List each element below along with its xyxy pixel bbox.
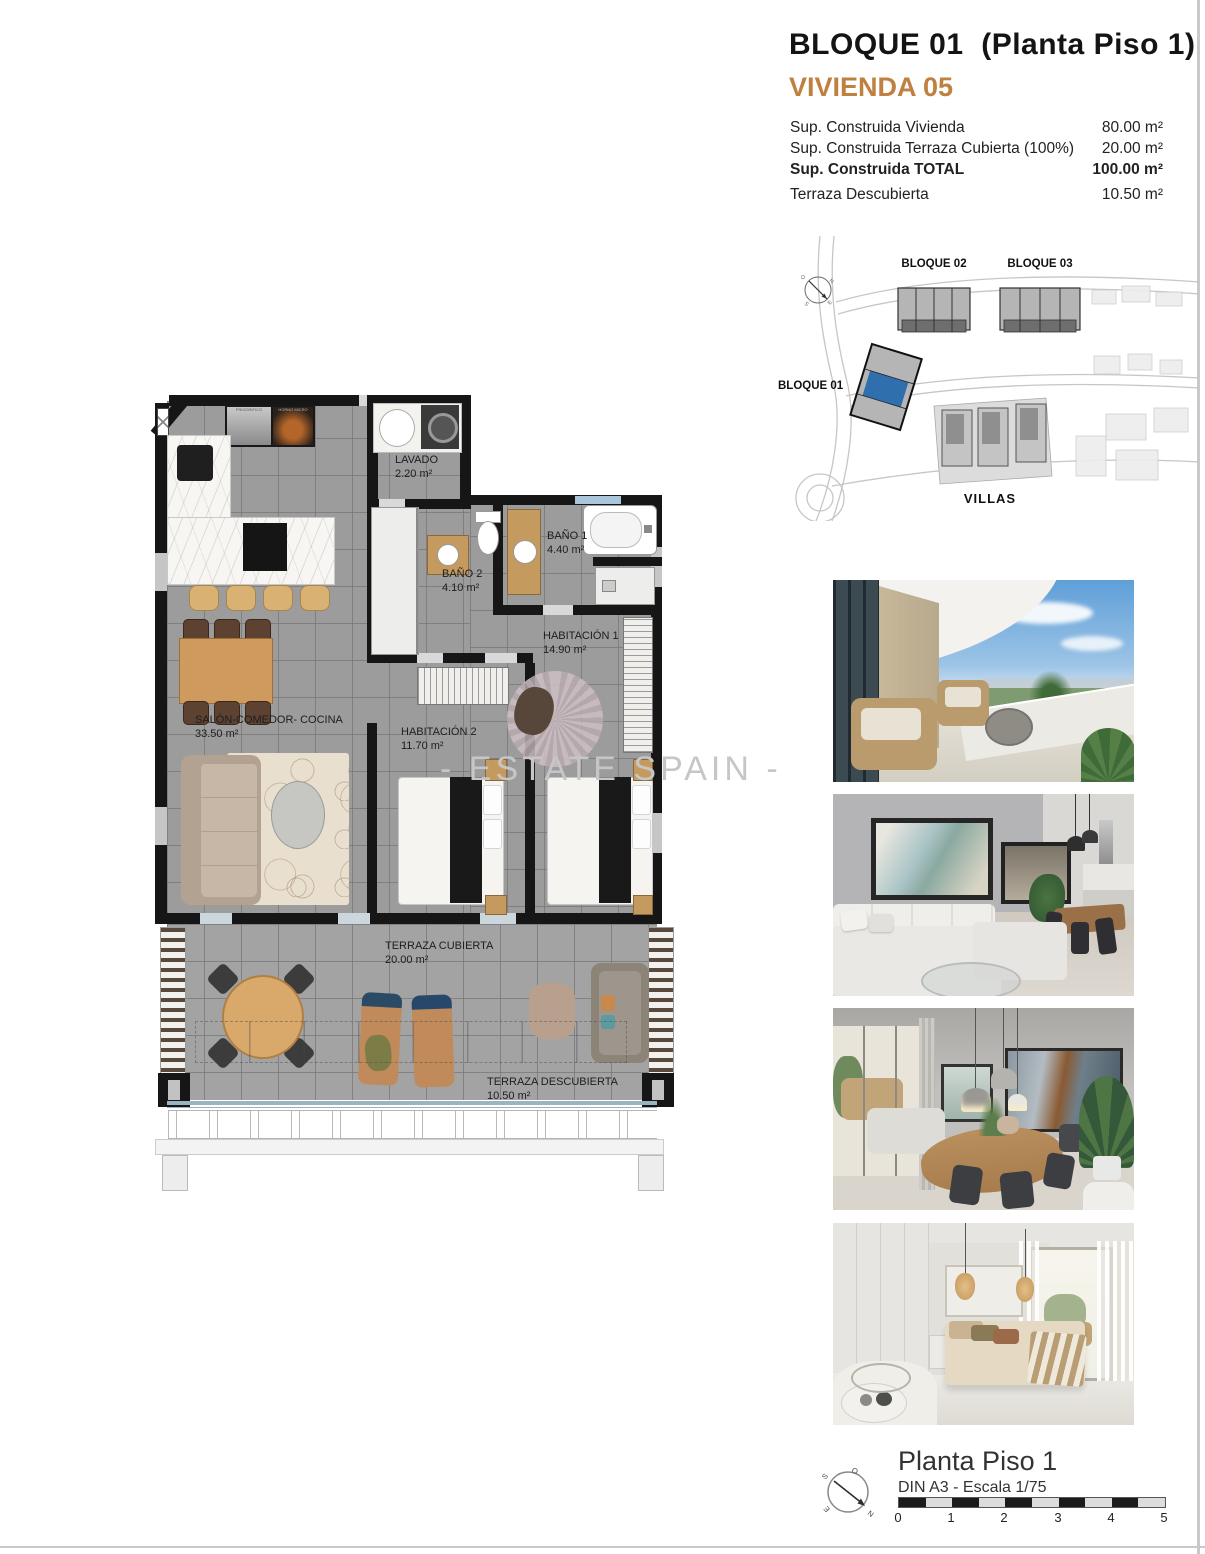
pendant-cord — [1017, 1008, 1018, 1098]
spec-value: 80.00 m² — [1102, 119, 1163, 137]
room-name: SALÓN-COMEDOR- COCINA — [195, 713, 343, 727]
room-label-lavado: LAVADO 2.20 m² — [395, 453, 438, 482]
pendant-cord — [1025, 1229, 1026, 1281]
building-bloque-01 — [850, 344, 921, 430]
roundabout — [796, 474, 844, 521]
context-building — [1154, 408, 1188, 432]
slider-gap-2 — [338, 913, 370, 924]
label-bloque-02: BLOQUE 02 — [901, 258, 966, 270]
dining-chair — [1042, 1152, 1075, 1190]
bed-runner-hab1 — [599, 777, 631, 903]
slider-gap-1 — [200, 913, 232, 924]
oven-label: HORNO MICRO — [273, 407, 313, 412]
bed — [945, 1321, 1085, 1385]
vanity-bath1 — [507, 509, 541, 595]
glass-coffee-table — [921, 962, 1021, 996]
wall-art-large — [871, 818, 993, 900]
post-cap — [168, 1080, 180, 1100]
compass-n: N — [828, 278, 835, 285]
pillow — [632, 785, 651, 815]
room-area: 14.90 m² — [543, 643, 619, 657]
corner-window — [157, 408, 169, 436]
villa-roof — [946, 414, 964, 444]
villa-roof — [982, 412, 1000, 444]
bar-stool — [226, 585, 256, 611]
pillow — [840, 908, 869, 931]
room-label-hab1: HABITACIÓN 1 14.90 m² — [543, 629, 619, 658]
washer-door — [428, 413, 458, 443]
toilet-bowl — [477, 521, 499, 555]
page-border-right — [1197, 0, 1200, 1554]
context-building — [1122, 286, 1150, 302]
villas-group — [934, 398, 1052, 484]
spec-row: Sup. Construida Terraza Cubierta (100%) … — [790, 140, 1163, 159]
room-label-terraza-cubierta: TERRAZA CUBIERTA 20.00 m² — [385, 939, 493, 968]
spec-value: 20.00 m² — [1102, 140, 1163, 158]
kitchen-cabinets — [1083, 864, 1134, 890]
appliance-strip: FRIGORIFICO HORNO MICRO — [225, 405, 315, 447]
room-area: 2.20 m² — [395, 467, 438, 481]
photo-dining-room — [833, 1008, 1134, 1210]
scale-segment — [926, 1498, 953, 1507]
room-name: LAVADO — [395, 453, 438, 467]
scale-tick: 3 — [1054, 1510, 1061, 1525]
room-area: 10.50 m² — [487, 1089, 618, 1103]
pergola-beam — [155, 1139, 664, 1155]
sink-bath1 — [513, 540, 537, 564]
pendant-lamp — [991, 1068, 1017, 1089]
label-villas: VILLAS — [964, 491, 1016, 506]
fridge: FRIGORIFICO — [227, 407, 271, 445]
label-bloque-01: BLOQUE 01 — [778, 380, 844, 392]
pendant-cord — [1003, 1008, 1004, 1072]
door-gap-hab1 — [543, 605, 573, 615]
room-name: HABITACIÓN 2 — [401, 725, 477, 739]
plant-pot — [1093, 1156, 1121, 1180]
scale-segment — [899, 1498, 926, 1507]
window-mullion — [863, 1026, 865, 1176]
oven-micro: HORNO MICRO — [273, 407, 313, 445]
spec-row: Terraza Descubierta 10.50 m² — [790, 186, 1163, 205]
road — [832, 236, 851, 521]
wall-right-zone-top — [460, 495, 662, 505]
context-building — [1106, 414, 1146, 440]
door-gap-hab2 — [485, 653, 517, 663]
striped-throw — [1027, 1331, 1086, 1387]
dining-chair — [1071, 922, 1089, 954]
building-bloque-02 — [898, 288, 970, 332]
rattan-lamp — [1016, 1277, 1034, 1302]
scale-tick: 2 — [1000, 1510, 1007, 1525]
cushion-orange — [601, 995, 615, 1011]
cloud — [1061, 636, 1123, 651]
site-plan: N O S E BLOQUE 02 BLOQUE 03 BLOQUE 01 VI… — [776, 236, 1200, 521]
scale-tick: 4 — [1107, 1510, 1114, 1525]
cushion — [945, 687, 981, 707]
spec-value: 10.50 m² — [1102, 186, 1163, 204]
pillow — [993, 1329, 1019, 1344]
bathtub-basin — [590, 512, 642, 548]
room-area: 20.00 m² — [385, 953, 493, 967]
photo-terrace — [833, 580, 1134, 782]
room-area: 4.40 m² — [547, 543, 587, 557]
dining-chair — [949, 1164, 984, 1206]
pendant-cord — [975, 1008, 976, 1092]
pendant-lamp — [1082, 830, 1098, 843]
room-label-terraza-descubierta: TERRAZA DESCUBIERTA 10.50 m² — [487, 1075, 618, 1104]
plan-sheet-page: BLOQUE 01 (Planta Piso 1) VIVIENDA 05 Su… — [0, 0, 1205, 1554]
compass-s: S — [820, 1472, 830, 1482]
context-buildings — [1076, 286, 1188, 480]
context-building — [1092, 290, 1116, 304]
window-bath1 — [575, 496, 621, 504]
pendant-lamp — [1008, 1094, 1027, 1111]
shower-bath2 — [371, 507, 419, 655]
shower-head — [602, 580, 616, 592]
door-gap-bath2 — [417, 653, 443, 663]
wall-salon-hab2 — [367, 723, 377, 913]
compass-e: E — [822, 1504, 832, 1514]
context-building — [1094, 356, 1120, 374]
wardrobe-hab2 — [417, 667, 509, 705]
terrace-paving-marks — [195, 1021, 627, 1063]
wall-tub-bottom — [593, 557, 662, 566]
context-building — [1076, 436, 1106, 476]
page-title: BLOQUE 01 (Planta Piso 1) — [789, 28, 1195, 62]
bar-stool — [189, 585, 219, 611]
wall-left — [155, 439, 167, 923]
post-cap — [652, 1080, 664, 1100]
window-left-2 — [155, 807, 167, 845]
nightstand — [633, 895, 653, 915]
pendant-cord — [1089, 794, 1090, 834]
lounger-headrest — [411, 994, 451, 1009]
room-area: 33.50 m² — [195, 727, 343, 741]
spec-row: Sup. Construida Vivienda 80.00 m² — [790, 119, 1163, 138]
scale-tick: 5 — [1160, 1510, 1167, 1525]
room-label-bath1: BAÑO 1 4.40 m² — [547, 529, 587, 558]
pillow — [869, 914, 893, 932]
footer-compass-icon: O S N E — [818, 1462, 882, 1522]
pillow — [483, 785, 502, 815]
plant — [1081, 728, 1134, 782]
compass-o: O — [800, 274, 808, 282]
window-left-1 — [155, 553, 167, 591]
wall-hab1-top — [493, 605, 662, 615]
scale-segment — [1032, 1498, 1059, 1507]
spec-label: Sup. Construida Terraza Cubierta (100%) — [790, 140, 1074, 158]
scale-tick: 1 — [947, 1510, 954, 1525]
spec-label: Sup. Construida TOTAL — [790, 161, 964, 179]
room-label-salon: SALÓN-COMEDOR- COCINA 33.50 m² — [195, 713, 343, 742]
plant — [1079, 1076, 1134, 1168]
room-name: TERRAZA DESCUBIERTA — [487, 1075, 618, 1089]
coffee-table — [985, 708, 1033, 746]
baluster-band — [168, 1110, 657, 1139]
washing-machine — [421, 405, 459, 449]
photo-bedroom — [833, 1223, 1134, 1425]
nightstand — [485, 895, 507, 915]
sofa — [181, 755, 261, 905]
louver-screen-left — [160, 927, 186, 1075]
chair-back — [851, 1363, 911, 1393]
compass-s: S — [803, 301, 810, 308]
context-building — [1128, 354, 1152, 370]
sofa-seats — [201, 763, 257, 897]
louver-screen-right — [648, 927, 674, 1075]
context-building — [1156, 292, 1182, 306]
bathtub-faucet — [644, 525, 652, 533]
sheer-curtain — [1097, 1241, 1134, 1381]
dining-table — [179, 638, 273, 704]
room-area: 4.10 m² — [442, 581, 482, 595]
bathtub — [583, 505, 657, 555]
unit-subtitle: VIVIENDA 05 — [789, 72, 953, 103]
pergola-leg-right — [638, 1155, 664, 1191]
cooktop — [243, 523, 287, 571]
villa-roof — [1020, 408, 1038, 440]
footer-scale-note: DIN A3 - Escala 1/75 — [898, 1479, 1047, 1497]
cushion — [861, 708, 921, 740]
room-name: BAÑO 2 — [442, 567, 482, 581]
sink-bath2 — [437, 544, 459, 566]
context-building — [1116, 450, 1158, 480]
lounger-headrest — [362, 992, 403, 1008]
dining-chair — [999, 1170, 1035, 1209]
coffee-table — [271, 781, 325, 849]
photo-living-room — [833, 794, 1134, 996]
scale-bar — [898, 1497, 1166, 1508]
cup — [860, 1394, 872, 1406]
page-border-bottom — [0, 1546, 1205, 1548]
footer-title: Planta Piso 1 — [898, 1446, 1057, 1477]
pillow — [632, 819, 651, 849]
label-bloque-03: BLOQUE 03 — [1007, 258, 1072, 270]
scale-segment — [1085, 1498, 1112, 1507]
laundry-sink — [379, 409, 415, 447]
pendant-cord — [965, 1223, 966, 1277]
room-name: BAÑO 1 — [547, 529, 587, 543]
scale-segment — [1005, 1498, 1032, 1507]
room-name: TERRAZA CUBIERTA — [385, 939, 493, 953]
scale-segment — [979, 1498, 1006, 1507]
bed-runner-hab2 — [450, 777, 482, 903]
bar-stool — [263, 585, 293, 611]
watermark: - ESTATE SPAIN - — [440, 750, 770, 789]
room-label-bath2: BAÑO 2 4.10 m² — [442, 567, 482, 596]
scale-segment — [1059, 1498, 1086, 1507]
spec-label: Sup. Construida Vivienda — [790, 119, 965, 137]
kitchen-sink — [177, 445, 213, 481]
shower-bath1 — [595, 567, 655, 605]
railing-line — [167, 1107, 657, 1108]
spec-value: 100.00 m² — [1092, 161, 1163, 179]
fridge-label: FRIGORIFICO — [227, 407, 271, 412]
armchair — [1083, 1182, 1134, 1210]
rattan-lamp — [955, 1273, 975, 1300]
teapot — [876, 1392, 892, 1406]
extractor-hood — [1099, 820, 1113, 864]
compass-n: N — [866, 1508, 876, 1518]
wicker-chair — [937, 680, 989, 726]
shower-glass — [416, 508, 418, 654]
room-name: HABITACIÓN 1 — [543, 629, 619, 643]
context-building — [1160, 360, 1182, 374]
wicker-sofa — [851, 698, 937, 770]
bar-stool — [300, 585, 330, 611]
scale-segment — [1138, 1498, 1165, 1507]
spec-label: Terraza Descubierta — [790, 186, 929, 204]
pillow — [483, 819, 502, 849]
spec-row-total: Sup. Construida TOTAL 100.00 m² — [790, 161, 1163, 180]
pendant-cord — [1075, 794, 1076, 840]
scale-segment — [1112, 1498, 1139, 1507]
scale-segment — [952, 1498, 979, 1507]
building-bloque-03 — [1000, 288, 1080, 332]
vases — [997, 1116, 1019, 1134]
scale-tick: 0 — [894, 1510, 901, 1525]
pergola-leg-left — [162, 1155, 188, 1191]
site-compass-icon: N O S E — [800, 274, 835, 309]
apartment-floor-plan: FRIGORIFICO HORNO MICRO — [155, 395, 677, 1195]
wardrobe-hab1 — [623, 617, 653, 753]
roundabout-inner — [807, 485, 833, 511]
